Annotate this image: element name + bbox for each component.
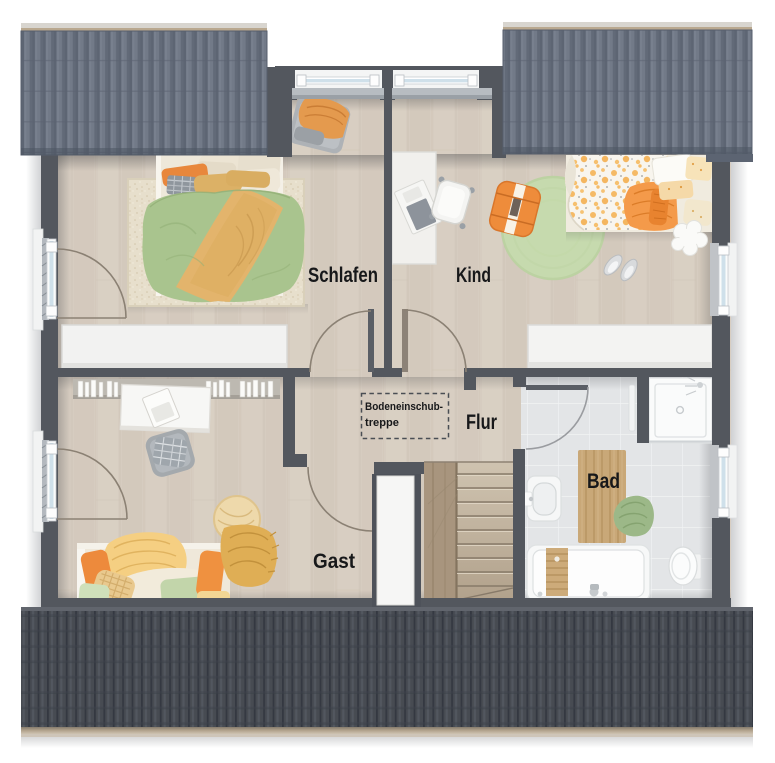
svg-text:Gast: Gast xyxy=(313,550,355,573)
svg-text:Kind: Kind xyxy=(456,264,491,287)
svg-text:Bad: Bad xyxy=(587,470,620,493)
svg-text:Schlafen: Schlafen xyxy=(308,264,378,287)
svg-text:Bodeneinschub-: Bodeneinschub- xyxy=(365,401,443,413)
svg-text:treppe: treppe xyxy=(365,417,399,429)
svg-text:Flur: Flur xyxy=(466,411,497,434)
